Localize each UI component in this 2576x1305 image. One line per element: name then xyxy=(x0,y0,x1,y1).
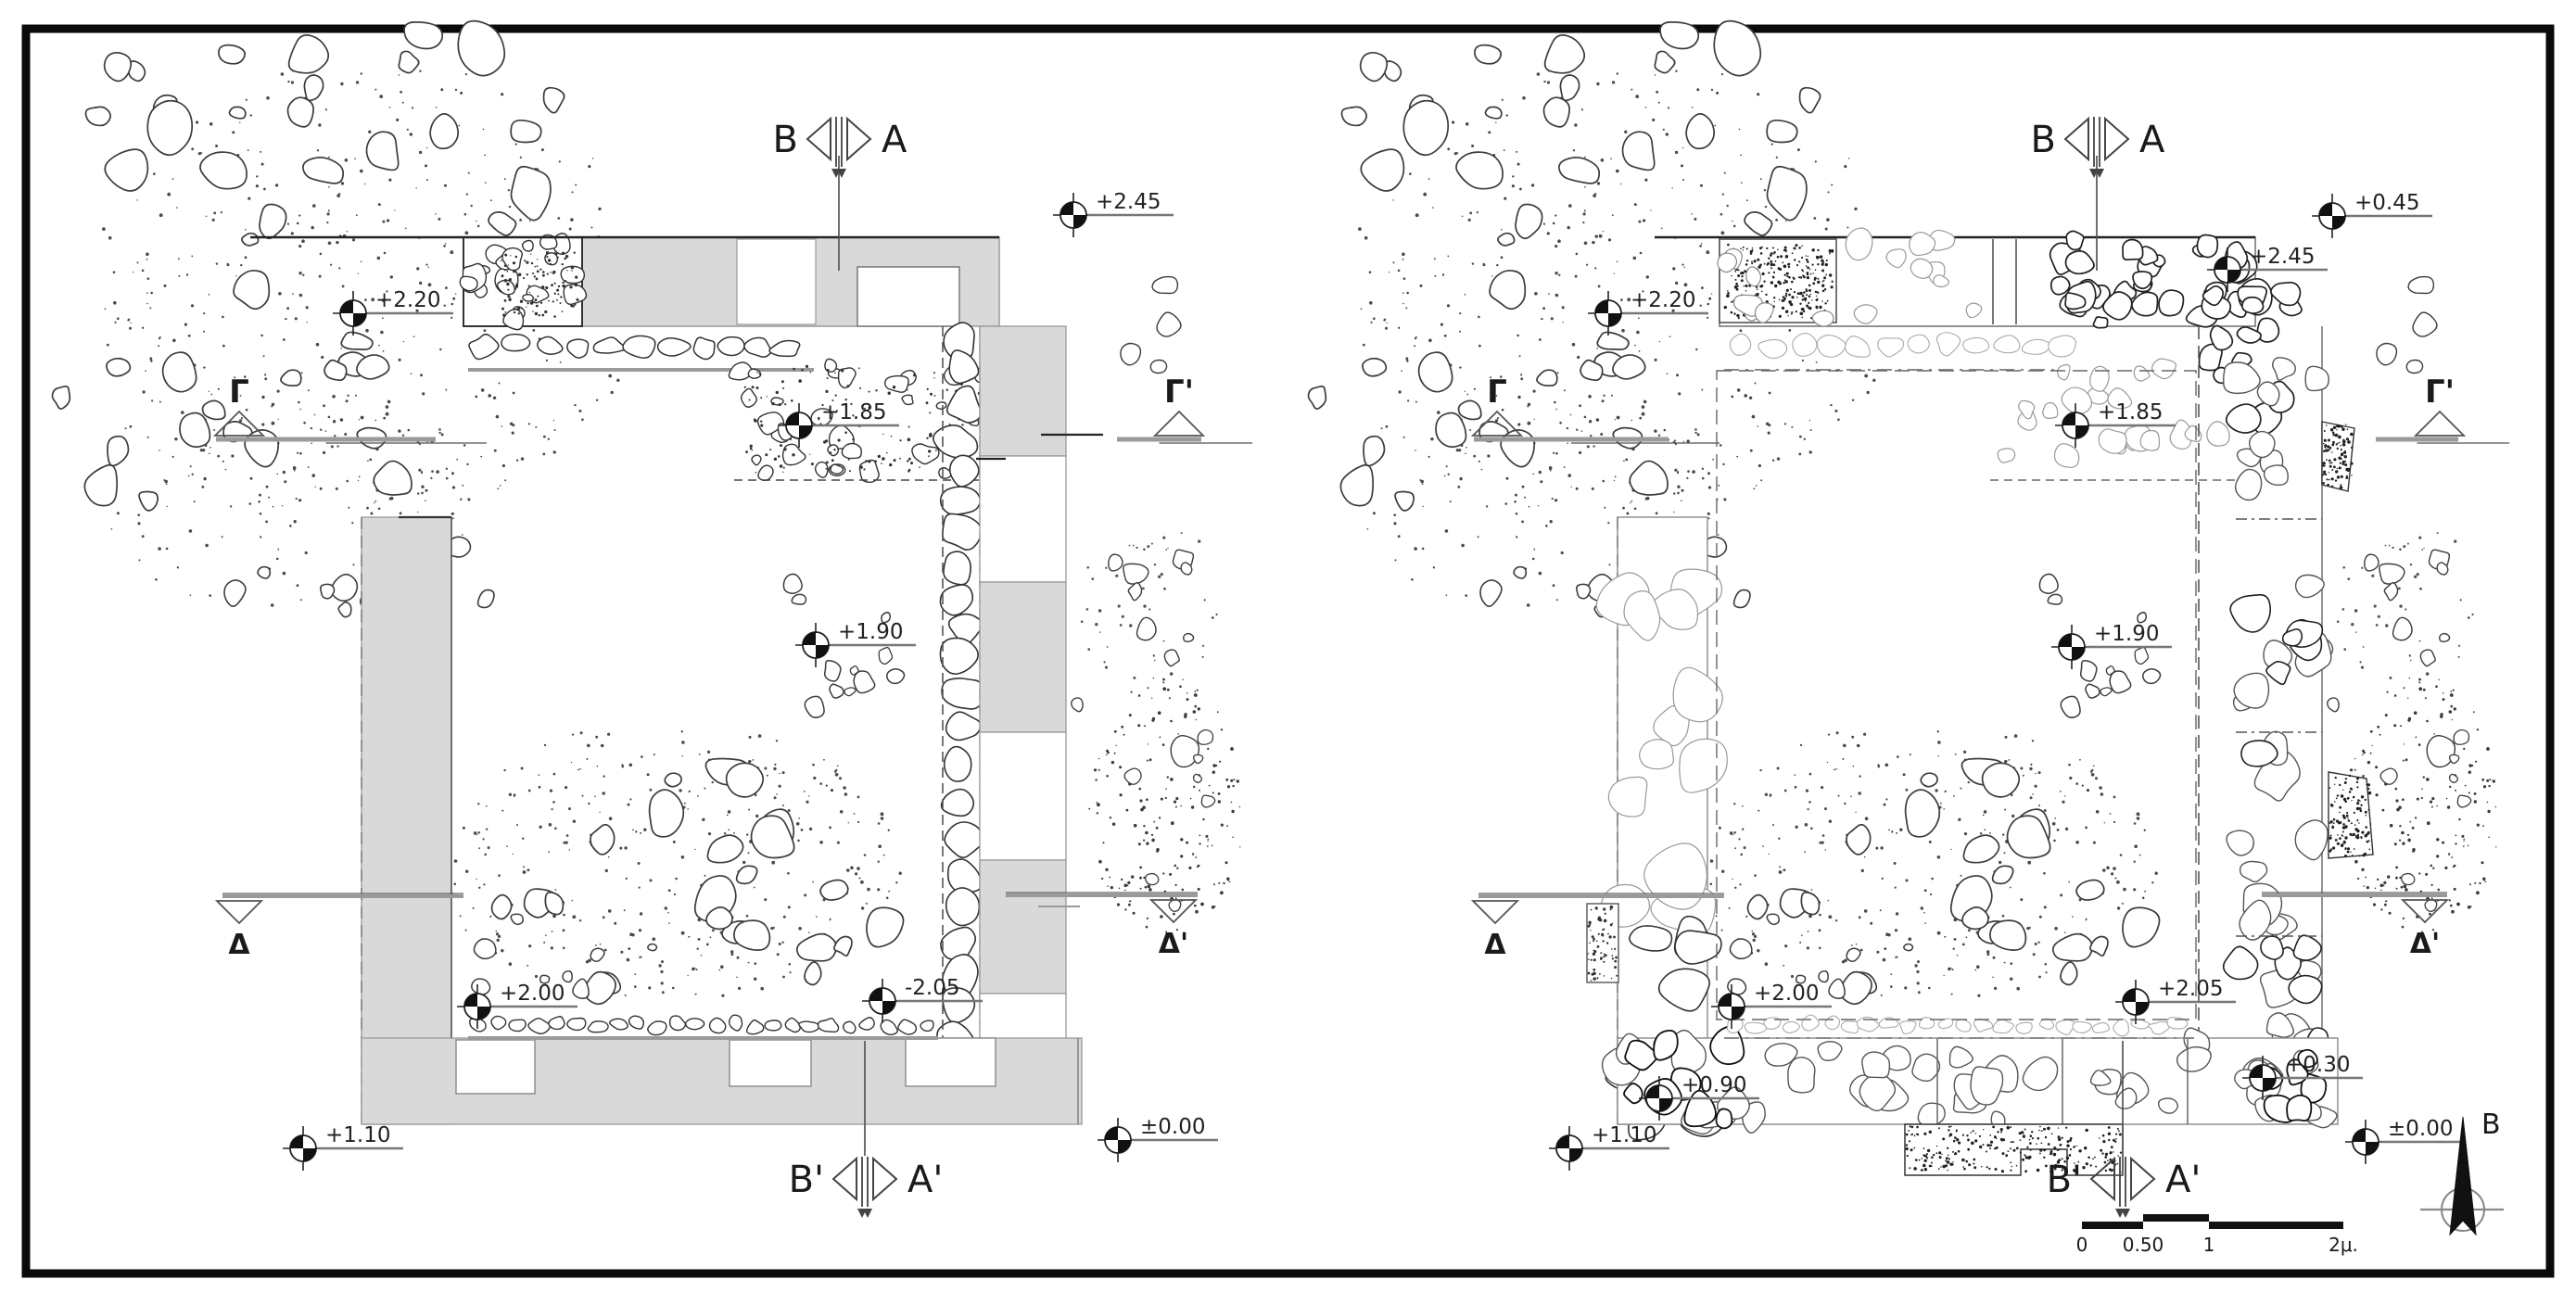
svg-text:B': B' xyxy=(789,1159,824,1201)
svg-text:Γ: Γ xyxy=(1487,374,1507,411)
svg-text:+1.85: +1.85 xyxy=(2098,400,2163,424)
svg-text:0: 0 xyxy=(2076,1234,2088,1256)
svg-text:+2.20: +2.20 xyxy=(1631,288,1695,312)
svg-text:+1.90: +1.90 xyxy=(838,620,903,644)
svg-text:Γ: Γ xyxy=(229,374,249,411)
plan-stone-drawing: BAB'A'ΓΓ'ΔΔ'+0.45+2.45+2.20+1.85+1.90+2.… xyxy=(1308,21,2509,1218)
east-scatter xyxy=(1072,277,1241,933)
scale-bar: 00.5012μ. xyxy=(2076,1218,2358,1256)
svg-text:Δ': Δ' xyxy=(1159,928,1188,960)
svg-text:+1.10: +1.10 xyxy=(325,1123,390,1147)
svg-text:Γ': Γ' xyxy=(1164,374,1194,411)
level-marker: +2.05 xyxy=(2115,977,2236,1024)
interior-stone-heap xyxy=(1693,730,2159,1004)
walls-stone xyxy=(1587,228,2373,1175)
svg-text:+0.90: +0.90 xyxy=(1681,1073,1746,1097)
section-marker-gamma: Γ' xyxy=(1117,374,1252,443)
svg-text:Δ: Δ xyxy=(1484,929,1506,961)
level-marker: +1.90 xyxy=(2051,622,2172,669)
svg-text:B': B' xyxy=(2047,1159,2082,1201)
plan-actual-state: BAB'A'ΓΓ'ΔΔ'+2.45+2.20+1.85+1.90+2.00-2.… xyxy=(52,21,1252,1218)
svg-text:+2.00: +2.00 xyxy=(500,982,565,1006)
svg-text:A': A' xyxy=(907,1159,943,1201)
svg-text:+2.20: +2.20 xyxy=(375,288,440,312)
svg-text:+1.85: +1.85 xyxy=(821,400,886,424)
svg-text:B: B xyxy=(2481,1109,2501,1141)
svg-text:+1.90: +1.90 xyxy=(2094,622,2159,646)
svg-text:+2.05: +2.05 xyxy=(2158,977,2223,1001)
svg-text:A': A' xyxy=(2165,1159,2201,1201)
plan-drawing: BAB'A'ΓΓ'ΔΔ'+2.45+2.20+1.85+1.90+2.00-2.… xyxy=(0,0,2576,1305)
level-marker: +0.45 xyxy=(2312,191,2432,238)
svg-text:±0.00: ±0.00 xyxy=(1140,1115,1205,1139)
svg-text:+1.10: +1.10 xyxy=(1592,1123,1656,1147)
svg-text:+0.30: +0.30 xyxy=(2285,1053,2350,1077)
svg-text:Δ: Δ xyxy=(228,929,250,961)
level-marker: +1.10 xyxy=(1549,1123,1669,1171)
section-marker-gamma: Γ' xyxy=(2376,374,2509,443)
interior-stone-heap xyxy=(437,730,903,1004)
level-marker: +1.90 xyxy=(795,620,916,667)
svg-text:1: 1 xyxy=(2203,1234,2215,1256)
site-plan-figure: BAB'A'ΓΓ'ΔΔ'+2.45+2.20+1.85+1.90+2.00-2.… xyxy=(0,0,2576,1305)
svg-text:+2.45: +2.45 xyxy=(1096,190,1161,214)
svg-text:B: B xyxy=(2031,119,2056,161)
level-marker: +2.45 xyxy=(1053,190,1174,237)
svg-text:Δ': Δ' xyxy=(2410,928,2440,960)
svg-text:A: A xyxy=(882,119,907,161)
svg-text:±0.00: ±0.00 xyxy=(2388,1117,2453,1141)
svg-text:+2.00: +2.00 xyxy=(1754,982,1819,1006)
svg-text:2μ.: 2μ. xyxy=(2329,1234,2358,1256)
level-marker: +2.20 xyxy=(1588,288,1708,336)
svg-text:-2.05: -2.05 xyxy=(905,976,960,1000)
svg-text:A: A xyxy=(2139,119,2165,161)
svg-text:B: B xyxy=(773,119,798,161)
svg-text:+0.45: +0.45 xyxy=(2354,191,2419,215)
svg-text:0.50: 0.50 xyxy=(2123,1234,2164,1256)
level-marker: +1.10 xyxy=(283,1123,403,1171)
svg-text:Γ': Γ' xyxy=(2425,374,2455,411)
level-marker: +2.20 xyxy=(333,288,453,336)
level-marker: ±0.00 xyxy=(2345,1117,2466,1164)
svg-text:+2.45: +2.45 xyxy=(2250,245,2315,269)
level-marker: ±0.00 xyxy=(1098,1115,1218,1162)
